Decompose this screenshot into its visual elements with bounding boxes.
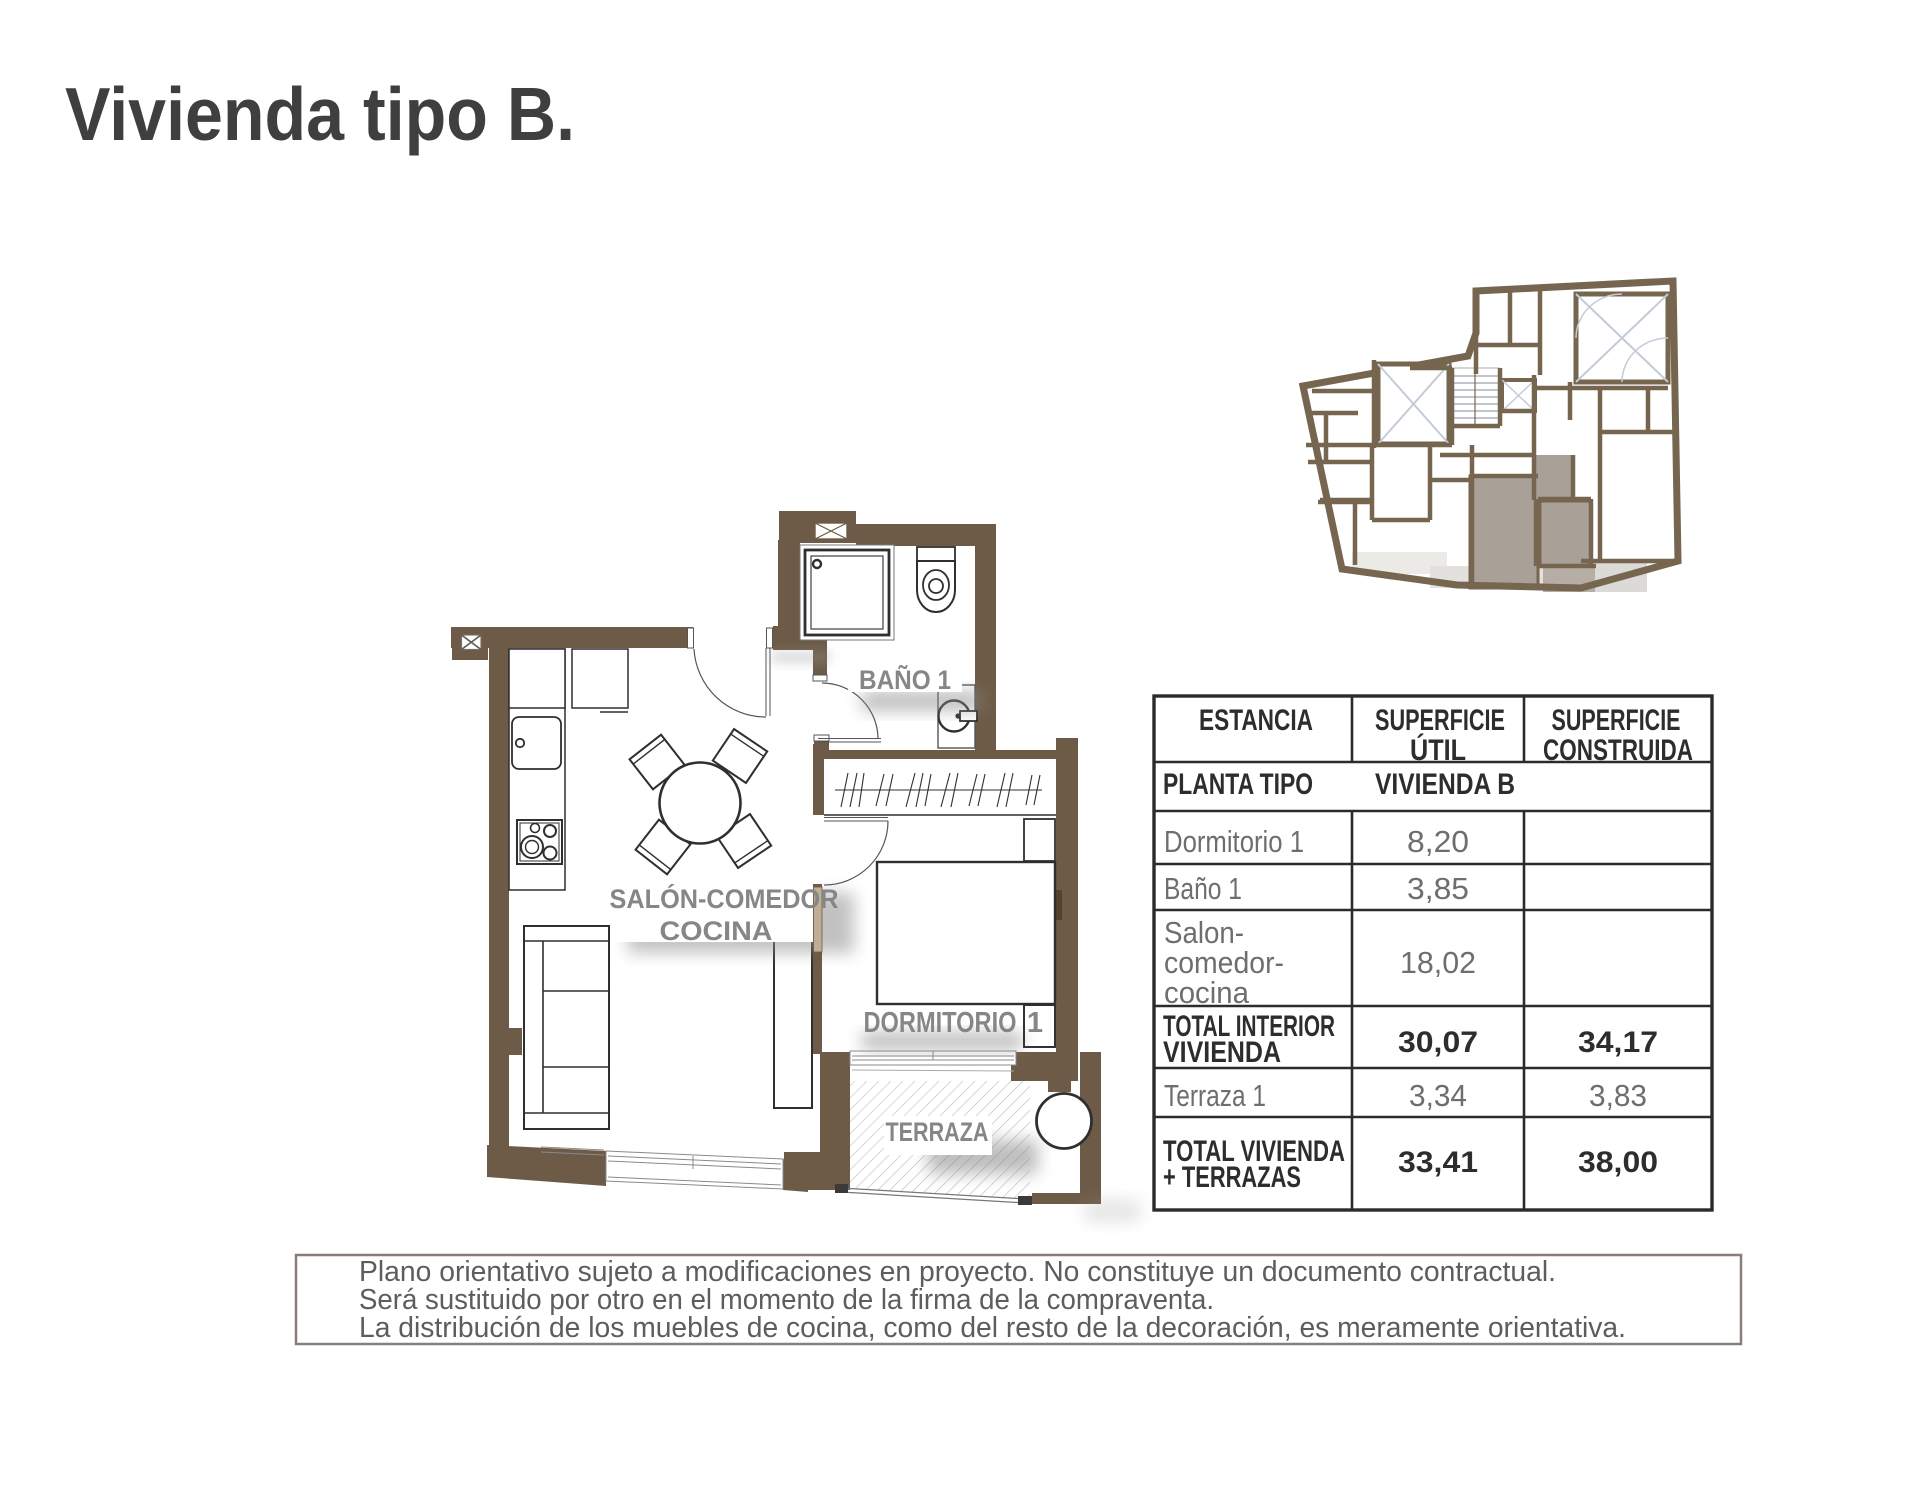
- svg-text:ESTANCIA: ESTANCIA: [1199, 704, 1313, 737]
- svg-text:SUPERFICIE: SUPERFICIE: [1552, 704, 1681, 737]
- svg-text:Baño 1: Baño 1: [1164, 871, 1242, 906]
- svg-text:+ TERRAZAS: + TERRAZAS: [1163, 1161, 1301, 1194]
- svg-text:PLANTA TIPO: PLANTA TIPO: [1163, 768, 1313, 801]
- svg-text:1: 1: [1027, 1007, 1043, 1039]
- svg-text:3,85: 3,85: [1407, 871, 1469, 906]
- svg-text:34,17: 34,17: [1578, 1026, 1658, 1059]
- svg-text:3,34: 3,34: [1409, 1078, 1467, 1113]
- svg-text:TERRAZA: TERRAZA: [886, 1117, 989, 1147]
- svg-text:Terraza 1: Terraza 1: [1164, 1078, 1266, 1113]
- svg-text:Dormitorio 1: Dormitorio 1: [1164, 824, 1304, 859]
- svg-text:COCINA: COCINA: [660, 916, 773, 946]
- svg-text:3,83: 3,83: [1589, 1078, 1647, 1113]
- svg-text:cocina: cocina: [1164, 975, 1250, 1010]
- svg-text:CONSTRUIDA: CONSTRUIDA: [1543, 734, 1693, 767]
- svg-text:30,07: 30,07: [1398, 1026, 1478, 1059]
- svg-text:SUPERFICIE: SUPERFICIE: [1375, 704, 1505, 737]
- svg-text:VIVIENDA B: VIVIENDA B: [1375, 768, 1515, 801]
- svg-text:BAÑO 1: BAÑO 1: [859, 664, 951, 695]
- svg-text:ÚTIL: ÚTIL: [1410, 733, 1466, 767]
- svg-text:8,20: 8,20: [1407, 824, 1469, 859]
- svg-text:SALÓN-COMEDOR: SALÓN-COMEDOR: [610, 883, 839, 914]
- svg-text:La distribución de los muebles: La distribución de los muebles de cocina…: [359, 1312, 1626, 1344]
- svg-text:38,00: 38,00: [1578, 1146, 1658, 1179]
- svg-text:33,41: 33,41: [1398, 1146, 1478, 1179]
- svg-text:18,02: 18,02: [1400, 945, 1476, 980]
- svg-text:Vivienda tipo B.: Vivienda tipo B.: [65, 72, 575, 156]
- svg-text:DORMITORIO: DORMITORIO: [864, 1007, 1017, 1039]
- svg-text:VIVIENDA: VIVIENDA: [1163, 1036, 1281, 1069]
